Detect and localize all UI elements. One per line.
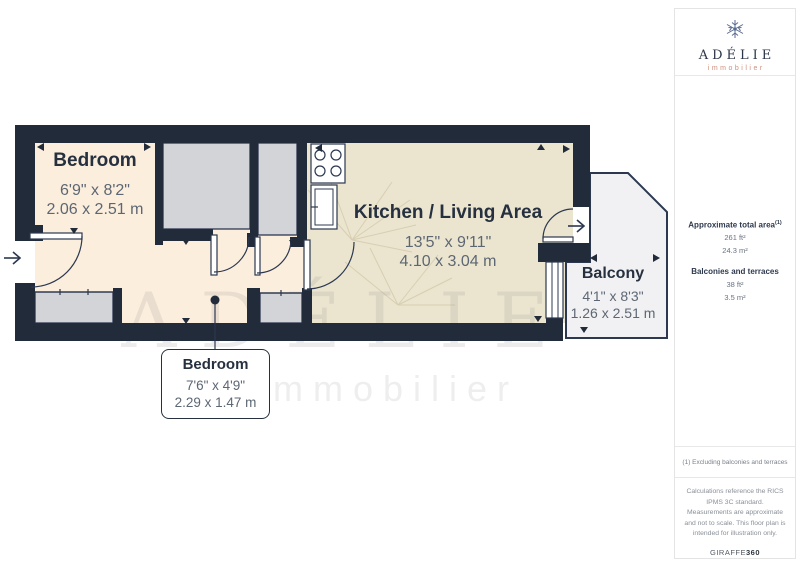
logo-block: ADÉLIE immobilier [675, 9, 795, 76]
balcony-label: Balcony 4'1" x 8'3" 1.26 x 2.51 m [551, 265, 675, 322]
kitchen-living-label: Kitchen / Living Area 13'5" x 9'11" 4.10… [346, 202, 550, 271]
entry-door-arc [31, 236, 82, 287]
disclaimer-text: Calculations reference the RICS IPMS 3C … [683, 487, 787, 540]
room-dims-metric: 1.26 x 2.51 m [551, 305, 675, 322]
kitchen-door-leaf [304, 240, 310, 290]
sink-icon [311, 185, 337, 229]
room-dims-imperial: 6'9" x 8'2" [23, 181, 167, 200]
storage-room-a [163, 143, 250, 229]
room-dims-imperial: 13'5" x 9'11" [346, 233, 550, 252]
balcony-area-m: 3.5 m² [724, 293, 745, 302]
snowflake-icon [724, 18, 746, 40]
total-area-m: 24.3 m² [722, 246, 747, 255]
total-area-label: Approximate total area(1) [688, 220, 781, 230]
room-dims-imperial: 4'1" x 8'3" [551, 288, 675, 305]
giraffe360-brand: GIRAFFE360 [683, 548, 787, 557]
total-area-ft: 261 ft² [724, 233, 745, 242]
floor-plan-page: ADÉLIE immobilier [0, 0, 800, 566]
disclaimer-block: Calculations reference the RICS IPMS 3C … [675, 478, 795, 558]
room-b-door-arc [257, 239, 291, 273]
info-sidebar: ADÉLIE immobilier Approximate total area… [674, 8, 796, 559]
entry-arrow-icon [4, 252, 20, 264]
footnote-ref: (1) [775, 220, 782, 226]
room-name: Bedroom [162, 356, 269, 373]
room-a-door-leaf [211, 235, 217, 275]
bedroom-2-callout: Bedroom 7'6" x 4'9" 2.29 x 1.47 m [161, 349, 270, 419]
room-dims-imperial: 7'6" x 4'9" [162, 377, 269, 394]
area-summary: Approximate total area(1) 261 ft² 24.3 m… [675, 76, 795, 447]
logo-brand-sub: immobilier [675, 65, 795, 72]
room-name: Kitchen / Living Area [346, 202, 550, 224]
entry-door-leaf [30, 233, 82, 239]
balcony-area-ft: 38 ft² [726, 280, 743, 289]
room-name: Bedroom [23, 150, 167, 172]
room-dims-metric: 4.10 x 3.04 m [346, 252, 550, 271]
room-dims-metric: 2.29 x 1.47 m [162, 394, 269, 411]
room-a-door-arc [214, 237, 249, 272]
balcony-area-label: Balconies and terraces [691, 267, 779, 276]
storage-room-b [258, 143, 297, 235]
footnote-block: (1) Excluding balconies and terraces [675, 447, 795, 478]
bedroom-1-label: Bedroom 6'9" x 8'2" 2.06 x 2.51 m [23, 150, 167, 219]
footnote-text: (1) Excluding balconies and terraces [682, 459, 787, 466]
callout-leader [211, 296, 220, 351]
balcony-arrow-icon [568, 220, 584, 232]
stove-icon [311, 144, 345, 183]
closet-middle [260, 293, 302, 323]
leader-dot [211, 296, 220, 305]
closet-left [35, 292, 113, 323]
room-name: Balcony [551, 265, 675, 283]
room-b-door-leaf [255, 237, 260, 275]
room-dims-metric: 2.06 x 2.51 m [23, 200, 167, 219]
logo-brand-name: ADÉLIE [675, 48, 795, 63]
